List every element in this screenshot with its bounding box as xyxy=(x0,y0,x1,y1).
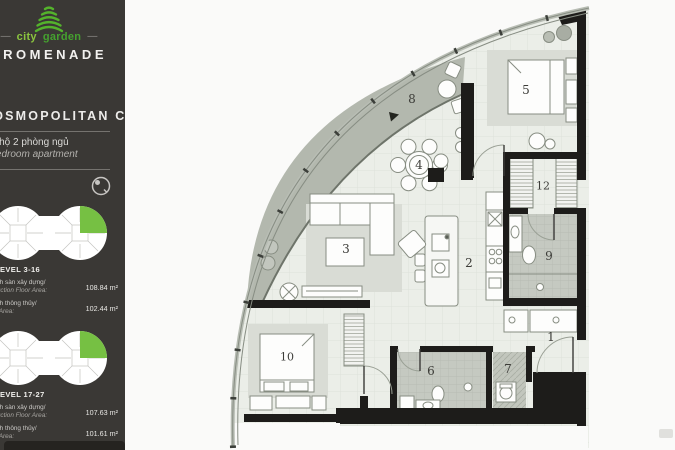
area-value: 108.84 m² xyxy=(86,283,118,292)
room-label-1: 1 xyxy=(547,331,555,343)
unit-location-highlight xyxy=(80,331,107,358)
room-label-9: 9 xyxy=(545,250,553,262)
apartment-floorplan-page: 1 2 3 4 5 6 7 8 9 10 12 —citygarden— PRO… xyxy=(0,0,675,450)
room-label-3: 3 xyxy=(342,243,350,255)
level-range-2: LEVEL 17-27 xyxy=(0,390,45,399)
keyplan-level-3-16 xyxy=(0,202,125,262)
area-label-vi: Diện tích thông thủy/ xyxy=(0,425,37,433)
area-row: Diện tích thông thủy/Carpet Area: 101.61… xyxy=(0,425,118,442)
room-label-4: 4 xyxy=(415,159,423,171)
room-label-7: 7 xyxy=(504,363,512,375)
area-value: 102.44 m² xyxy=(86,304,118,313)
area-value: 107.63 m² xyxy=(86,408,118,417)
area-label-vi: Diện tích sàn xây dựng/ xyxy=(0,404,47,412)
area-row: Diện tích sàn xây dựng/Construction Floo… xyxy=(0,279,118,296)
area-label-vi: Diện tích thông thủy/ xyxy=(0,300,37,308)
unit-type-en: 2 bedroom apartment xyxy=(0,149,78,160)
room-label-5: 5 xyxy=(522,84,530,96)
room-label-2: 2 xyxy=(465,257,473,269)
divider xyxy=(0,131,110,132)
watermark xyxy=(659,429,673,438)
logo-dash-left: — xyxy=(1,32,11,42)
keyplan-level-17-27 xyxy=(0,327,125,387)
room-label-6: 6 xyxy=(427,365,435,377)
logo-dash-right: — xyxy=(87,32,97,42)
logo-garden-text: garden xyxy=(43,31,81,43)
logo-city-text: city xyxy=(17,31,37,43)
area-label-en: Carpet Area: xyxy=(0,308,37,316)
area-label-vi: Diện tích sàn xây dựng/ xyxy=(0,279,47,287)
citygarden-logo-icon xyxy=(32,4,66,34)
unit-title: COSMOPOLITAN C xyxy=(0,109,125,123)
room-label-8: 8 xyxy=(408,93,416,105)
area-value: 101.61 m² xyxy=(86,429,118,438)
area-label-en: Construction Floor Area: xyxy=(0,412,47,420)
level-range-1: LEVEL 3-16 xyxy=(0,265,40,274)
brand-name: PROMENADE xyxy=(0,47,125,62)
area-row: Diện tích sàn xây dựng/Construction Floo… xyxy=(0,404,118,421)
sidebar-footer-bar xyxy=(4,441,125,450)
citygarden-wordmark: —citygarden— xyxy=(0,31,125,43)
compass-icon xyxy=(90,175,112,197)
sidebar: —citygarden— PROMENADE COSMOPOLITAN C Că… xyxy=(0,0,125,450)
area-label-en: Carpet Area: xyxy=(0,433,37,441)
room-label-12: 12 xyxy=(536,181,550,192)
room-label-10: 10 xyxy=(280,352,294,363)
area-row: Diện tích thông thủy/Carpet Area: 102.44… xyxy=(0,300,118,317)
divider xyxy=(0,169,110,170)
unit-location-highlight xyxy=(80,206,107,233)
area-label-en: Construction Floor Area: xyxy=(0,287,47,295)
unit-type-vi: Căn hộ 2 phòng ngủ xyxy=(0,137,69,148)
